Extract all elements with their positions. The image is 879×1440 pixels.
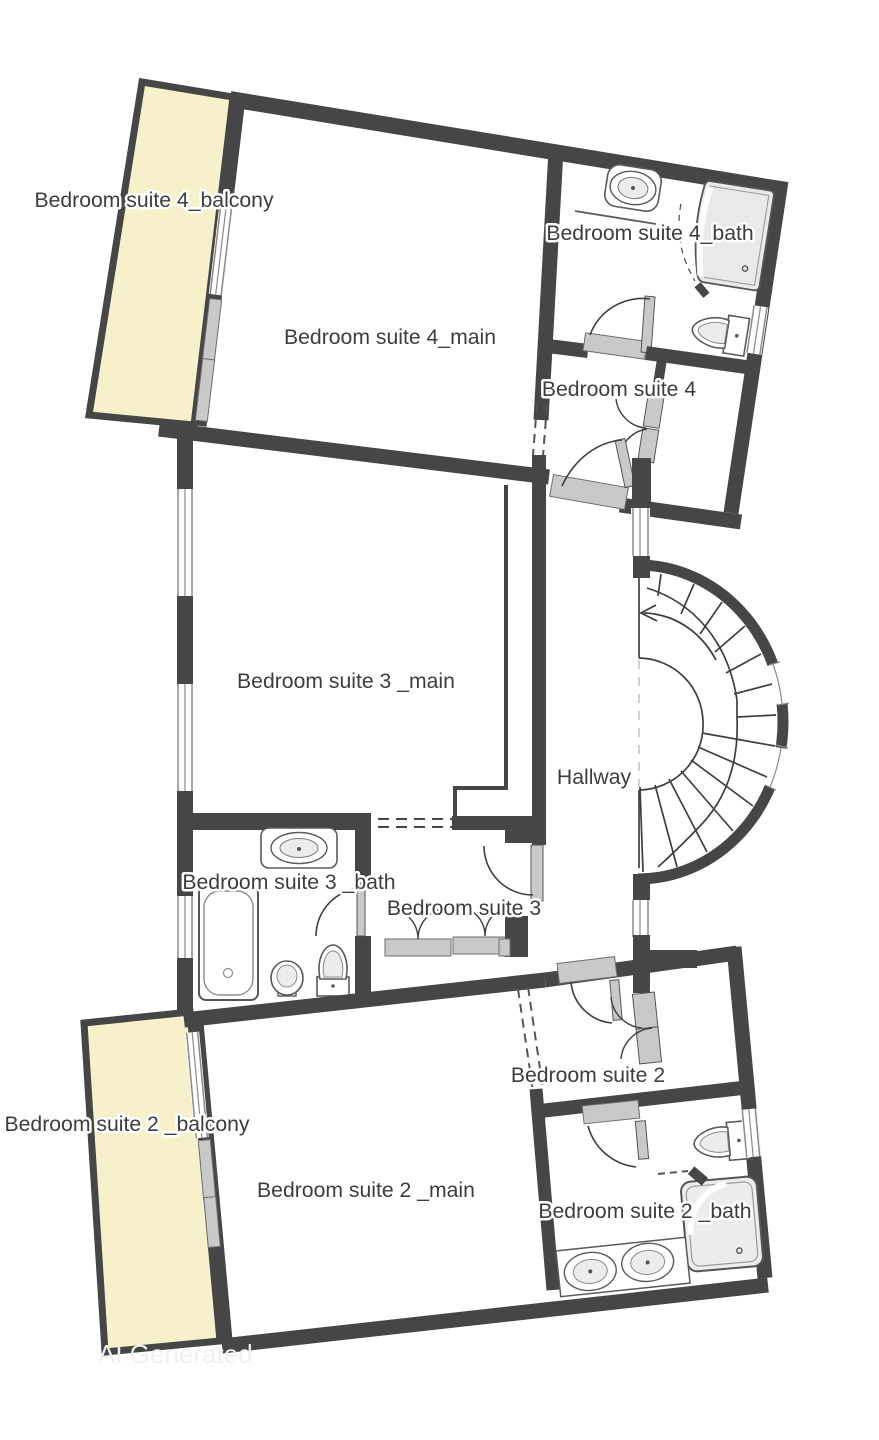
svg-text:Bedroom suite 2 _main: Bedroom suite 2 _main <box>257 1179 475 1202</box>
svg-text:Bedroom suite 4_bath: Bedroom suite 4_bath <box>546 222 753 245</box>
svg-text:Bedroom suite 3 _main: Bedroom suite 3 _main <box>237 670 455 693</box>
svg-text:Bedroom suite 2 _bath: Bedroom suite 2 _bath <box>538 1200 751 1223</box>
svg-text:Bedroom suite 2: Bedroom suite 2 <box>511 1064 665 1087</box>
svg-text:Bedroom suite 4_balcony: Bedroom suite 4_balcony <box>34 189 274 212</box>
svg-text:Hallway: Hallway <box>557 766 632 789</box>
svg-text:Bedroom suite 3 _bath: Bedroom suite 3 _bath <box>182 871 395 894</box>
svg-text:AI Generated: AI Generated <box>98 1339 253 1369</box>
svg-text:Bedroom suite 4: Bedroom suite 4 <box>542 378 696 401</box>
svg-text:Bedroom suite 4_main: Bedroom suite 4_main <box>284 326 496 349</box>
svg-text:Bedroom suite 3: Bedroom suite 3 <box>387 897 541 920</box>
svg-text:Bedroom suite 2 _balcony: Bedroom suite 2 _balcony <box>5 1113 250 1136</box>
